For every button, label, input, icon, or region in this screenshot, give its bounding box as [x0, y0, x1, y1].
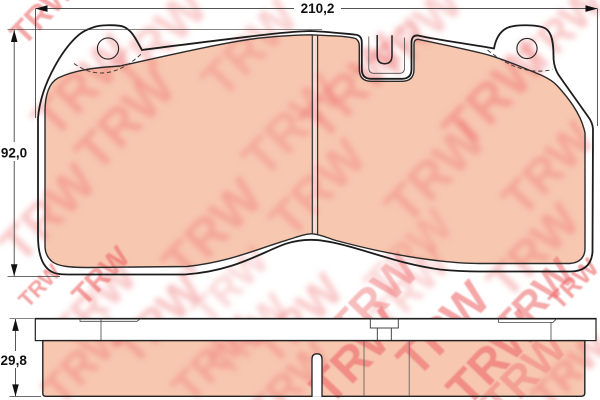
svg-text:29,8: 29,8 — [1, 353, 28, 368]
svg-text:92,0: 92,0 — [1, 146, 27, 161]
svg-text:210,2: 210,2 — [301, 1, 335, 16]
